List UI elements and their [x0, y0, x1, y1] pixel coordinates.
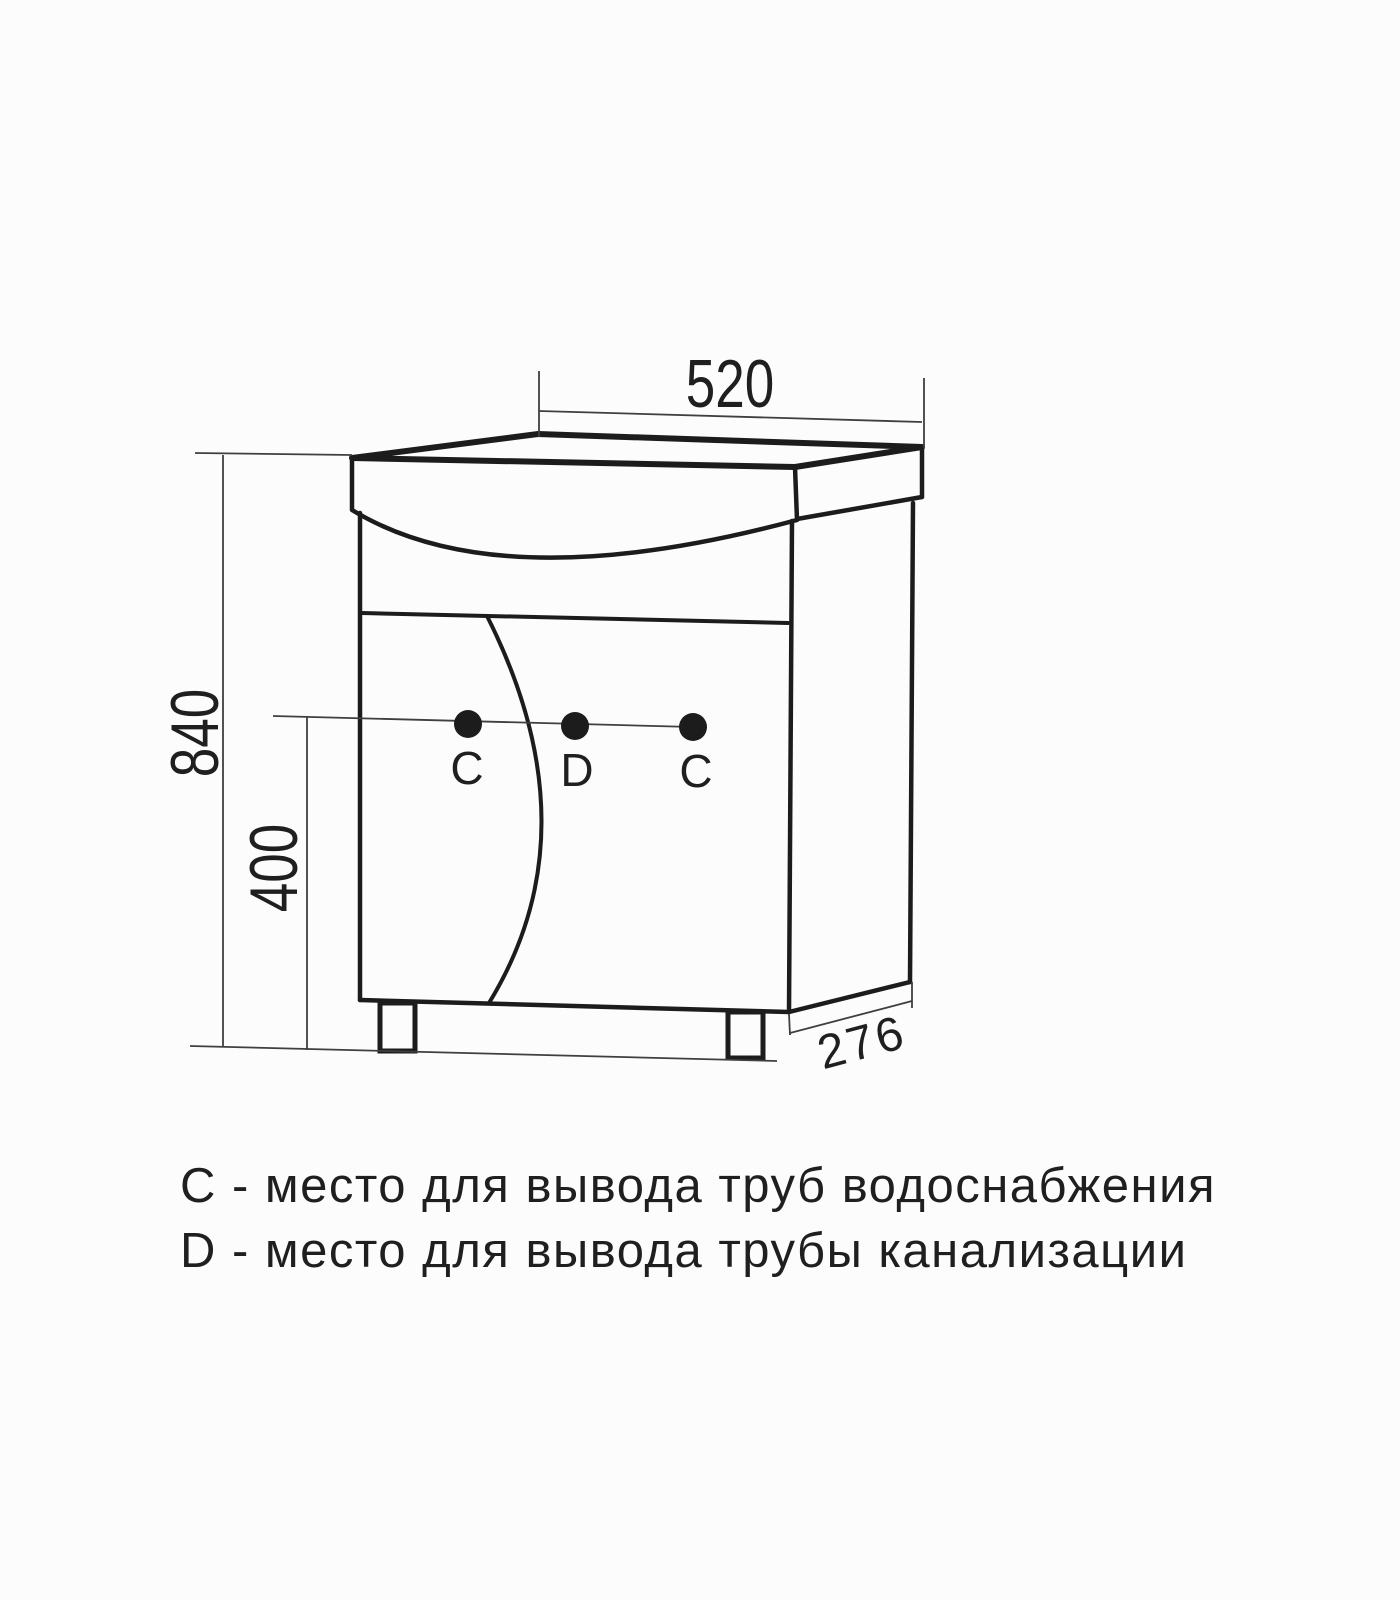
legend: C - место для вывода труб водоснабжения …	[180, 1159, 1216, 1278]
dimension-total-height: 840	[157, 453, 352, 1047]
dim-width-label: 520	[686, 346, 774, 422]
height-extension-top	[195, 453, 352, 455]
sink-top-surface	[352, 434, 922, 467]
hole-dot-center	[561, 712, 589, 740]
holes-reference-line	[273, 716, 693, 727]
dimension-width: 520	[539, 346, 924, 448]
cabinet-bottom-edge	[360, 1000, 789, 1012]
legend-line-2: D - место для вывода трубы канализации	[180, 1224, 1187, 1278]
sink-top	[352, 434, 922, 558]
diagram-canvas: 520 840 400 276 C D C	[0, 0, 1400, 1600]
legend-line-1: C - место для вывода труб водоснабжения	[180, 1159, 1216, 1213]
floor-extension-line	[190, 1046, 777, 1061]
cabinet-front-right-edge	[789, 521, 792, 1012]
hole-markers: C D C	[273, 710, 713, 797]
cabinet-back-right-edge	[910, 503, 913, 982]
door-separator-line	[362, 613, 788, 623]
depth-extension-left	[789, 1014, 790, 1035]
hole-label-center: D	[560, 744, 593, 796]
dim-hole-height-label: 400	[236, 824, 312, 912]
hole-label-left: C	[450, 742, 483, 794]
hole-label-right: C	[679, 745, 712, 797]
dim-height-label: 840	[157, 689, 233, 777]
sink-apron-curve	[352, 458, 797, 558]
hole-dot-right	[679, 713, 707, 741]
dim-depth-label: 276	[812, 1006, 912, 1080]
vanity-cabinet-drawing: 520 840 400 276 C D C	[0, 0, 1400, 1600]
front-left-leg	[380, 1003, 415, 1051]
door-split-curve	[487, 616, 542, 1003]
hole-dot-left	[454, 710, 482, 738]
cabinet-body	[360, 503, 913, 1058]
front-right-leg	[728, 1012, 763, 1058]
